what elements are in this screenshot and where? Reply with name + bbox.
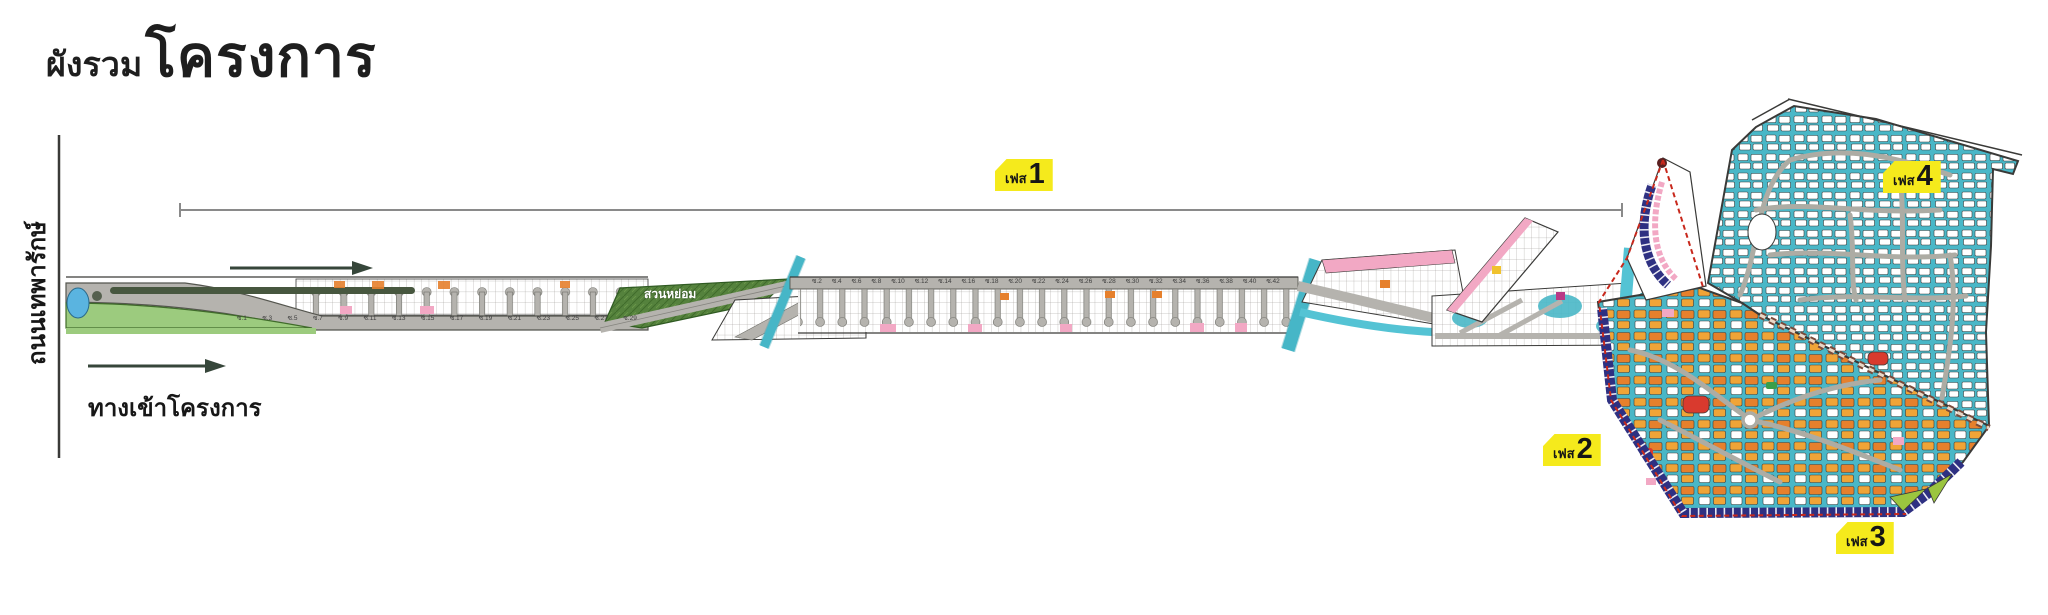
soi-labels-bottom: ซ.1ซ.3ซ.5ซ.7ซ.9ซ.11ซ.13ซ.15ซ.17ซ.19ซ.21ซ… [237,316,637,323]
phase-3-tag: เฟส 3 [1836,522,1894,554]
road-name-label: ถนนเทพารักษ์ [17,208,43,378]
phase4-pond [1748,214,1776,250]
page-title: ผังรวม โครงการ [46,12,377,102]
entrance-arrow-icon [88,359,226,373]
phase-4-number: 4 [1917,162,1933,191]
phase-4-tag: เฟส 4 [1883,161,1941,193]
phase-3-prefix: เฟส [1846,531,1868,552]
roundabout-south [1743,413,1757,427]
phase-1-number: 1 [1029,160,1045,189]
soi-labels-top: ซ.2ซ.4ซ.6ซ.8ซ.10ซ.12ซ.14ซ.16ซ.18ซ.20ซ.22… [812,279,1280,286]
phase1-extent-line [180,203,1622,217]
phase-1-prefix: เฟส [1005,168,1027,189]
phase-2-prefix: เฟส [1553,443,1575,464]
phase-4-prefix: เฟส [1893,170,1915,191]
entry-pond [67,288,89,318]
phase-3-number: 3 [1870,523,1886,552]
masterplan-canvas: ผังรวม โครงการ ถนนเทพารักษ์ ทางเข้าโครงก… [0,0,2048,615]
strip-direction-arrow-icon [230,261,373,275]
road-median [110,287,415,294]
title-prefix: ผังรวม [46,37,142,91]
strip-middle-section [790,277,1298,334]
strip-left-section [66,277,648,334]
phase-1-tag: เฟส 1 [995,159,1053,191]
garden-label: สวนหย่อม [644,285,696,304]
red-lot [1683,396,1709,413]
entrance-label: ทางเข้าโครงการ [88,388,262,427]
phase-2-number: 2 [1577,435,1593,464]
phase-2-tag: เฟส 2 [1543,434,1601,466]
title-main: โครงการ [145,12,376,102]
peninsula-finger [1627,158,1706,300]
